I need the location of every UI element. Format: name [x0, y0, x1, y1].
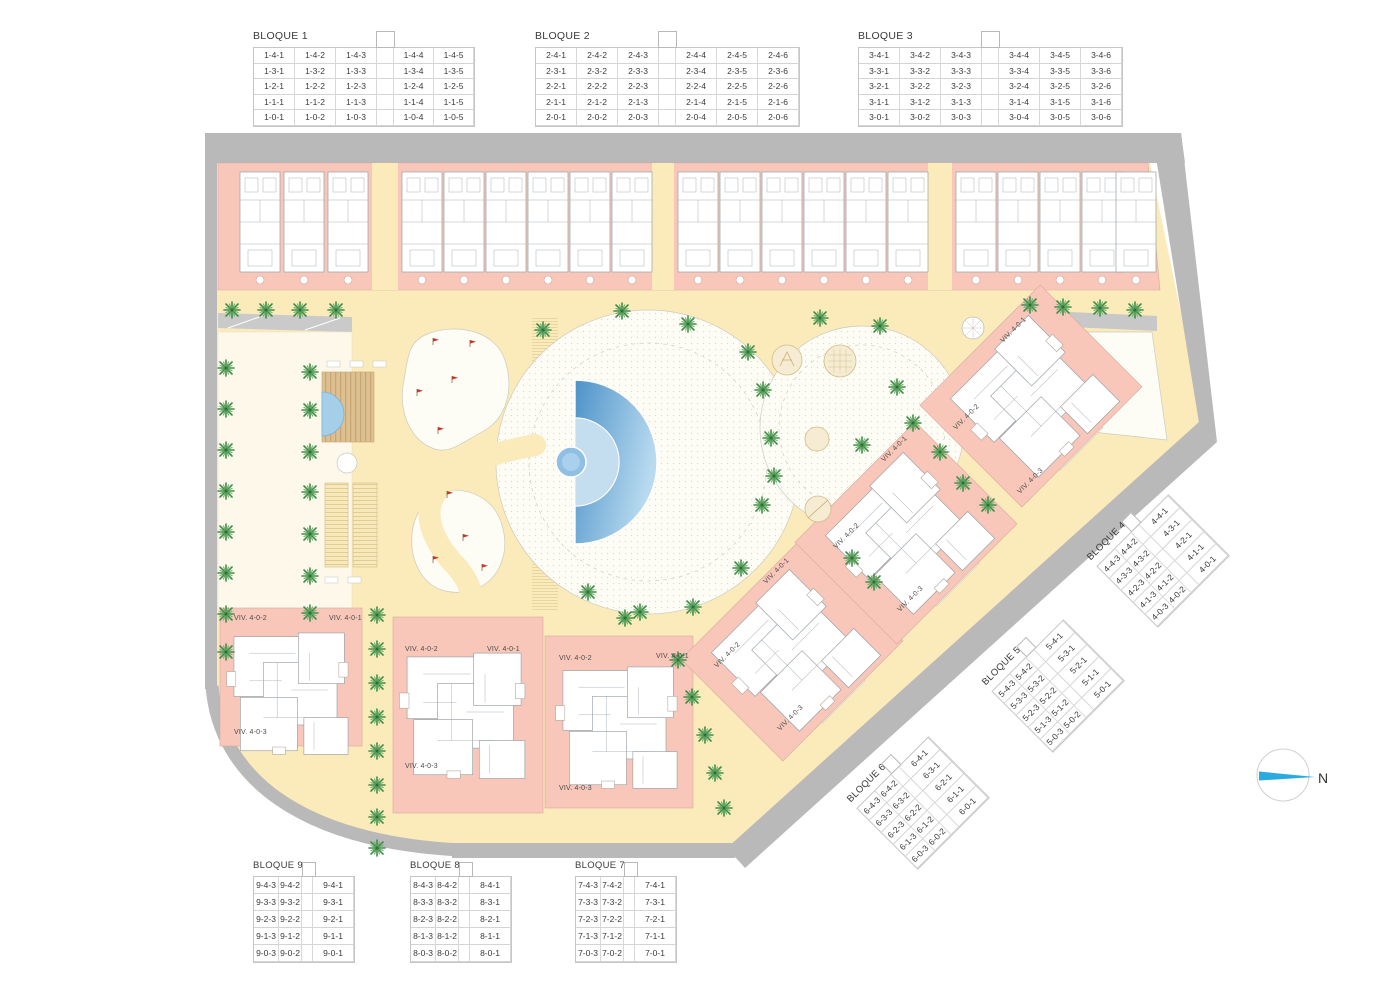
unit-cell: 7-3-2 — [601, 894, 624, 911]
pergola-1 — [325, 483, 348, 567]
unit-cell: 7-3-1 — [635, 894, 676, 911]
unit-cell: 2-1-3 — [618, 95, 659, 111]
gap-cell — [659, 110, 676, 126]
gap-cell — [624, 877, 635, 894]
palm-tree-icon — [369, 809, 385, 825]
gap-cell — [982, 79, 999, 95]
unit-cell: 8-4-1 — [470, 877, 511, 894]
unit-cell: 3-1-3 — [941, 95, 982, 111]
viv-label: VIV. 4-0-3 — [234, 729, 267, 736]
bloque-1-grid: 1-4-11-4-21-4-31-4-41-4-51-3-11-3-21-3-3… — [253, 47, 475, 127]
palm-tree-icon — [218, 606, 234, 622]
unit-cell: 1-2-1 — [254, 79, 295, 95]
unit-cell: 2-2-4 — [676, 79, 717, 95]
unit-cell: 3-0-3 — [941, 110, 982, 126]
bloque-1-label: BLOQUE 1 — [253, 30, 475, 47]
gap-cell — [459, 911, 470, 928]
unit-cell: 1-4-2 — [295, 48, 336, 64]
gap-cell — [459, 877, 470, 894]
unit-cell: 1-0-4 — [394, 110, 434, 126]
gap-cell — [659, 48, 676, 64]
unit-cell: 1-3-5 — [434, 64, 474, 80]
unit-cell: 9-3-2 — [279, 894, 302, 911]
unit-cell: 3-0-6 — [1081, 110, 1122, 126]
palm-tree-icon — [766, 468, 782, 484]
garden-circle — [337, 453, 357, 473]
apartment-unit-plan — [762, 172, 802, 284]
spa-inner — [562, 453, 580, 471]
unit-cell: 7-0-1 — [635, 945, 676, 962]
apartment-unit-plan — [1116, 172, 1156, 284]
site-plan-page: VIV. 4-0-2 VIV. 4-0-1 VIV. 4-0-3 VIV. 4-… — [0, 0, 1400, 989]
north-arrow-icon — [1259, 772, 1315, 781]
viv-label: VIV. 4-0-1 — [329, 615, 362, 622]
unit-cell: 1-1-1 — [254, 95, 295, 111]
unit-cell: 8-4-3 — [411, 877, 436, 894]
unit-cell: 1-1-3 — [336, 95, 377, 111]
palm-tree-icon — [302, 444, 318, 460]
gap-cell — [377, 48, 394, 64]
unit-cell: 7-3-3 — [576, 894, 601, 911]
unit-cell: 7-1-2 — [601, 928, 624, 945]
gap-cell — [377, 95, 394, 111]
stair-core-box — [624, 862, 638, 877]
gap-cell — [302, 945, 313, 962]
unit-cell: 3-2-3 — [941, 79, 982, 95]
apartment-unit-plan — [956, 172, 996, 284]
unit-cell: 8-2-3 — [411, 911, 436, 928]
palm-tree-icon — [218, 483, 234, 499]
palm-tree-icon — [218, 442, 234, 458]
palm-tree-icon — [224, 302, 240, 318]
unit-cell: 3-1-5 — [1040, 95, 1081, 111]
gap-cell — [982, 64, 999, 80]
unit-cell: 8-2-1 — [470, 911, 511, 928]
apartment-unit-plan — [804, 172, 844, 284]
unit-cell: 1-4-3 — [336, 48, 377, 64]
palm-tree-icon — [1055, 299, 1071, 315]
unit-cell: 3-2-1 — [859, 79, 900, 95]
unit-cell: 1-3-3 — [336, 64, 377, 80]
unit-cell: 3-2-4 — [999, 79, 1040, 95]
left-road — [205, 133, 217, 689]
unit-cell: 8-1-3 — [411, 928, 436, 945]
viv-label: VIV. 4-0-2 — [234, 615, 267, 622]
unit-cell: 2-3-6 — [758, 64, 799, 80]
bloque-8-table: BLOQUE 8 8-4-38-4-28-4-18-3-38-3-28-3-18… — [410, 860, 512, 963]
palm-tree-icon — [302, 364, 318, 380]
palm-tree-icon — [1022, 297, 1038, 313]
unit-cell: 3-1-4 — [999, 95, 1040, 111]
palm-tree-icon — [292, 302, 308, 318]
unit-cell: 8-0-1 — [470, 945, 511, 962]
palm-tree-icon — [733, 560, 749, 576]
unit-cell: 2-1-4 — [676, 95, 717, 111]
bloque-9-table: BLOQUE 9 9-4-39-4-29-4-19-3-39-3-29-3-19… — [253, 860, 355, 963]
unit-cell: 2-3-5 — [717, 64, 758, 80]
unit-cell: 3-3-6 — [1081, 64, 1122, 80]
unit-cell: 2-4-3 — [618, 48, 659, 64]
gap-cell — [659, 95, 676, 111]
palm-tree-icon — [302, 526, 318, 542]
unit-cell: 3-1-1 — [859, 95, 900, 111]
unit-cell: 2-4-6 — [758, 48, 799, 64]
gap-cell — [377, 64, 394, 80]
palm-tree-icon — [707, 765, 723, 781]
palm-tree-icon — [685, 599, 701, 615]
unit-cell: 9-4-2 — [279, 877, 302, 894]
viv-label: VIV. 4-0-3 — [559, 785, 592, 792]
unit-cell: 3-4-3 — [941, 48, 982, 64]
bloque-9-grid: 9-4-39-4-29-4-19-3-39-3-29-3-19-2-39-2-2… — [253, 876, 355, 963]
unit-cell: 9-2-3 — [254, 911, 279, 928]
unit-cell: 3-4-4 — [999, 48, 1040, 64]
unit-cell: 7-2-1 — [635, 911, 676, 928]
unit-cell: 1-4-5 — [434, 48, 474, 64]
palm-tree-icon — [812, 310, 828, 326]
palm-tree-icon — [218, 524, 234, 540]
unit-cell: 2-0-6 — [758, 110, 799, 126]
unit-cell: 9-1-1 — [313, 928, 354, 945]
palm-tree-icon — [218, 644, 234, 660]
unit-cell: 9-4-1 — [313, 877, 354, 894]
palm-tree-icon — [218, 565, 234, 581]
bloque-2-table: BLOQUE 2 2-4-12-4-22-4-32-4-42-4-52-4-62… — [535, 30, 800, 127]
unit-cell: 9-0-2 — [279, 945, 302, 962]
apartment-cluster-plan — [227, 633, 348, 754]
viv-label: VIV. 4-0-2 — [559, 655, 592, 662]
bloque-2-grid: 2-4-12-4-22-4-32-4-42-4-52-4-62-3-12-3-2… — [535, 47, 800, 127]
unit-cell: 3-3-3 — [941, 64, 982, 80]
bloque-8-grid: 8-4-38-4-28-4-18-3-38-3-28-3-18-2-38-2-2… — [410, 876, 512, 963]
apartment-unit-plan — [528, 172, 568, 284]
apartment-unit-plan — [612, 172, 652, 284]
apartment-unit-plan — [678, 172, 718, 284]
palm-tree-icon — [955, 475, 971, 491]
palm-tree-icon — [866, 574, 882, 590]
gap-cell — [459, 928, 470, 945]
unit-cell: 7-1-1 — [635, 928, 676, 945]
unit-cell: 1-3-4 — [394, 64, 434, 80]
palm-tree-icon — [844, 550, 860, 566]
palm-tree-icon — [218, 360, 234, 376]
unit-cell: 2-2-2 — [577, 79, 618, 95]
gap-cell — [659, 79, 676, 95]
bloque-3-table: BLOQUE 3 3-4-13-4-23-4-33-4-43-4-53-4-63… — [858, 30, 1123, 127]
bloque-1-table: BLOQUE 1 1-4-11-4-21-4-31-4-41-4-51-3-11… — [253, 30, 475, 127]
palm-tree-icon — [369, 641, 385, 657]
palm-tree-icon — [632, 604, 648, 620]
unit-cell: 3-3-1 — [859, 64, 900, 80]
gap-cell — [982, 110, 999, 126]
apartment-unit-plan — [444, 172, 484, 284]
unit-cell: 8-3-3 — [411, 894, 436, 911]
unit-cell: 9-4-3 — [254, 877, 279, 894]
apartment-unit-plan — [240, 172, 280, 284]
palm-tree-icon — [302, 484, 318, 500]
unit-cell: 7-4-1 — [635, 877, 676, 894]
site-plan: VIV. 4-0-2 VIV. 4-0-1 VIV. 4-0-3 VIV. 4-… — [0, 0, 1400, 989]
palm-tree-icon — [369, 743, 385, 759]
palm-tree-icon — [763, 430, 779, 446]
unit-cell: 9-1-3 — [254, 928, 279, 945]
gap-cell — [624, 911, 635, 928]
gap-cell — [377, 79, 394, 95]
unit-cell: 1-1-5 — [434, 95, 474, 111]
stair-core-box — [376, 31, 395, 48]
north-label: N — [1318, 770, 1328, 786]
palm-tree-icon — [302, 402, 318, 418]
gap-cell — [459, 894, 470, 911]
apartment-unit-plan — [846, 172, 886, 284]
palm-tree-icon — [580, 584, 596, 600]
unit-cell: 3-2-2 — [900, 79, 941, 95]
unit-cell: 2-4-1 — [536, 48, 577, 64]
palm-tree-icon — [872, 318, 888, 334]
unit-cell: 2-2-1 — [536, 79, 577, 95]
unit-cell: 9-0-3 — [254, 945, 279, 962]
unit-cell: 9-3-1 — [313, 894, 354, 911]
unit-cell: 1-3-1 — [254, 64, 295, 80]
unit-cell: 1-2-3 — [336, 79, 377, 95]
unit-cell: 8-4-2 — [436, 877, 459, 894]
gap-cell — [302, 894, 313, 911]
apartment-unit-plan — [1040, 172, 1080, 284]
apartment-unit-plan — [888, 172, 928, 284]
unit-cell: 3-1-6 — [1081, 95, 1122, 111]
top-road — [205, 133, 1185, 163]
unit-cell: 3-4-5 — [1040, 48, 1081, 64]
unit-cell: 2-3-2 — [577, 64, 618, 80]
unit-cell: 2-2-5 — [717, 79, 758, 95]
viv-label: VIV. 4-0-2 — [405, 646, 438, 653]
palm-tree-icon — [1127, 302, 1143, 318]
top-building-band — [218, 163, 1160, 290]
unit-cell: 8-0-2 — [436, 945, 459, 962]
unit-cell: 2-1-5 — [717, 95, 758, 111]
bloque-7-grid: 7-4-37-4-27-4-17-3-37-3-27-3-17-2-37-2-2… — [575, 876, 677, 963]
apartment-unit-plan — [998, 172, 1038, 284]
gap-cell — [302, 911, 313, 928]
gap-cell — [377, 110, 394, 126]
unit-cell: 3-0-4 — [999, 110, 1040, 126]
unit-cell: 9-1-2 — [279, 928, 302, 945]
palm-tree-icon — [328, 302, 344, 318]
gap-cell — [624, 894, 635, 911]
apartment-unit-plan — [720, 172, 760, 284]
gap-cell — [459, 945, 470, 962]
unit-cell: 1-2-4 — [394, 79, 434, 95]
palm-tree-icon — [980, 497, 996, 513]
unit-cell: 1-1-2 — [295, 95, 336, 111]
unit-cell: 2-0-3 — [618, 110, 659, 126]
unit-cell: 3-0-1 — [859, 110, 900, 126]
unit-cell: 2-1-6 — [758, 95, 799, 111]
unit-cell: 1-0-1 — [254, 110, 295, 126]
unit-cell: 3-3-4 — [999, 64, 1040, 80]
unit-cell: 2-4-4 — [676, 48, 717, 64]
palm-tree-icon — [697, 727, 713, 743]
viv-label: VIV. 4-0-1 — [656, 653, 689, 660]
palm-tree-icon — [854, 437, 870, 453]
palm-tree-icon — [1092, 300, 1108, 316]
stair-core-box — [658, 31, 677, 48]
unit-cell: 7-4-2 — [601, 877, 624, 894]
palm-tree-icon — [369, 777, 385, 793]
palm-tree-icon — [680, 316, 696, 332]
apartment-unit-plan — [284, 172, 324, 284]
palm-tree-icon — [369, 607, 385, 623]
palm-tree-icon — [258, 302, 274, 318]
unit-cell: 2-4-5 — [717, 48, 758, 64]
unit-cell: 2-1-1 — [536, 95, 577, 111]
gap-cell — [302, 877, 313, 894]
unit-cell: 7-2-2 — [601, 911, 624, 928]
palm-tree-icon — [716, 800, 732, 816]
apartment-unit-plan — [486, 172, 526, 284]
palm-tree-icon — [218, 401, 234, 417]
palm-tree-icon — [932, 444, 948, 460]
apartment-unit-plan — [328, 172, 368, 284]
unit-cell: 3-3-5 — [1040, 64, 1081, 80]
unit-cell: 1-0-5 — [434, 110, 474, 126]
palm-tree-icon — [905, 415, 921, 431]
unit-cell: 7-2-3 — [576, 911, 601, 928]
unit-cell: 8-3-1 — [470, 894, 511, 911]
palm-tree-icon — [535, 322, 551, 338]
unit-cell: 3-4-1 — [859, 48, 900, 64]
north-indicator: N — [1257, 749, 1328, 801]
unit-cell: 7-0-2 — [601, 945, 624, 962]
unit-cell: 2-1-2 — [577, 95, 618, 111]
unit-cell: 9-2-1 — [313, 911, 354, 928]
unit-cell: 7-0-3 — [576, 945, 601, 962]
unit-cell: 1-0-3 — [336, 110, 377, 126]
unit-cell: 3-3-2 — [900, 64, 941, 80]
palm-tree-icon — [369, 675, 385, 691]
apartment-unit-plan — [402, 172, 442, 284]
unit-cell: 7-1-3 — [576, 928, 601, 945]
gap-cell — [659, 64, 676, 80]
unit-cell: 8-0-3 — [411, 945, 436, 962]
bottom-road — [452, 843, 735, 858]
palm-tree-icon — [684, 689, 700, 705]
unit-cell: 9-2-2 — [279, 911, 302, 928]
bloque-3-grid: 3-4-13-4-23-4-33-4-43-4-53-4-63-3-13-3-2… — [858, 47, 1123, 127]
gap-cell — [982, 48, 999, 64]
bloque-7-table: BLOQUE 7 7-4-37-4-27-4-17-3-37-3-27-3-17… — [575, 860, 677, 963]
unit-cell: 9-3-3 — [254, 894, 279, 911]
pergola-2 — [353, 483, 377, 567]
viv-label: VIV. 4-0-3 — [405, 763, 438, 770]
play-circle — [805, 427, 829, 451]
palm-tree-icon — [369, 709, 385, 725]
palm-tree-icon — [889, 379, 905, 395]
unit-cell: 3-0-5 — [1040, 110, 1081, 126]
unit-cell: 1-4-4 — [394, 48, 434, 64]
palm-tree-icon — [369, 840, 385, 856]
unit-cell: 1-3-2 — [295, 64, 336, 80]
unit-cell: 2-3-4 — [676, 64, 717, 80]
unit-cell: 3-2-5 — [1040, 79, 1081, 95]
unit-cell: 2-2-6 — [758, 79, 799, 95]
apartment-cluster-plan — [556, 667, 677, 788]
unit-cell: 1-2-2 — [295, 79, 336, 95]
gap-cell — [982, 95, 999, 111]
unit-cell: 3-2-6 — [1081, 79, 1122, 95]
unit-cell: 2-3-3 — [618, 64, 659, 80]
palm-tree-icon — [302, 568, 318, 584]
unit-cell: 3-4-2 — [900, 48, 941, 64]
stair-core-box — [302, 862, 316, 877]
unit-cell: 2-0-2 — [577, 110, 618, 126]
gap-cell — [624, 945, 635, 962]
unit-cell: 3-1-2 — [900, 95, 941, 111]
unit-cell: 8-1-1 — [470, 928, 511, 945]
unit-cell: 8-2-2 — [436, 911, 459, 928]
unit-cell: 1-4-1 — [254, 48, 295, 64]
unit-cell: 2-3-1 — [536, 64, 577, 80]
palm-tree-icon — [740, 344, 756, 360]
unit-cell: 1-0-2 — [295, 110, 336, 126]
unit-cell: 3-4-6 — [1081, 48, 1122, 64]
apartment-cluster-plan — [400, 653, 525, 778]
unit-cell: 8-1-2 — [436, 928, 459, 945]
unit-cell: 2-4-2 — [577, 48, 618, 64]
unit-cell: 8-3-2 — [436, 894, 459, 911]
unit-cell: 2-0-5 — [717, 110, 758, 126]
unit-cell: 2-0-4 — [676, 110, 717, 126]
palm-tree-icon — [755, 382, 771, 398]
unit-cell: 7-4-3 — [576, 877, 601, 894]
palm-tree-icon — [302, 605, 318, 621]
unit-cell: 1-1-4 — [394, 95, 434, 111]
stair-core-box — [981, 31, 1000, 48]
unit-cell: 2-2-3 — [618, 79, 659, 95]
gap-cell — [302, 928, 313, 945]
unit-cell: 2-0-1 — [536, 110, 577, 126]
viv-label: VIV. 4-0-1 — [487, 646, 520, 653]
stair-core-box — [459, 862, 473, 877]
unit-cell: 3-0-2 — [900, 110, 941, 126]
palm-tree-icon — [614, 303, 630, 319]
gap-cell — [624, 928, 635, 945]
palm-tree-icon — [754, 497, 770, 513]
unit-cell: 1-2-5 — [434, 79, 474, 95]
unit-cell: 9-0-1 — [313, 945, 354, 962]
palm-tree-icon — [617, 610, 633, 626]
apartment-unit-plan — [570, 172, 610, 284]
